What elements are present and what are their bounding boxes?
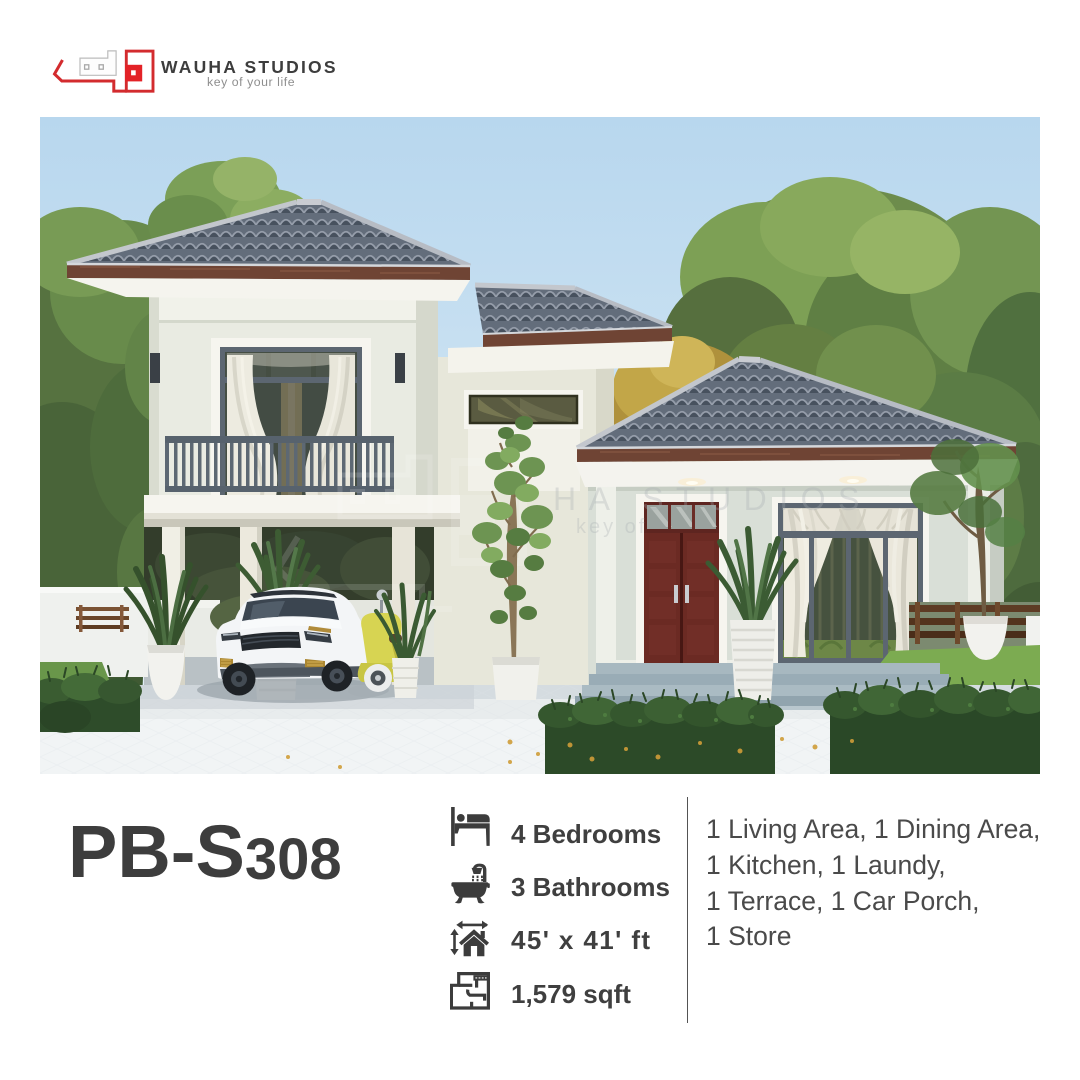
svg-text:key of: key of — [576, 516, 647, 538]
svg-text:HA STUDIOS: HA STUDIOS — [553, 481, 872, 517]
